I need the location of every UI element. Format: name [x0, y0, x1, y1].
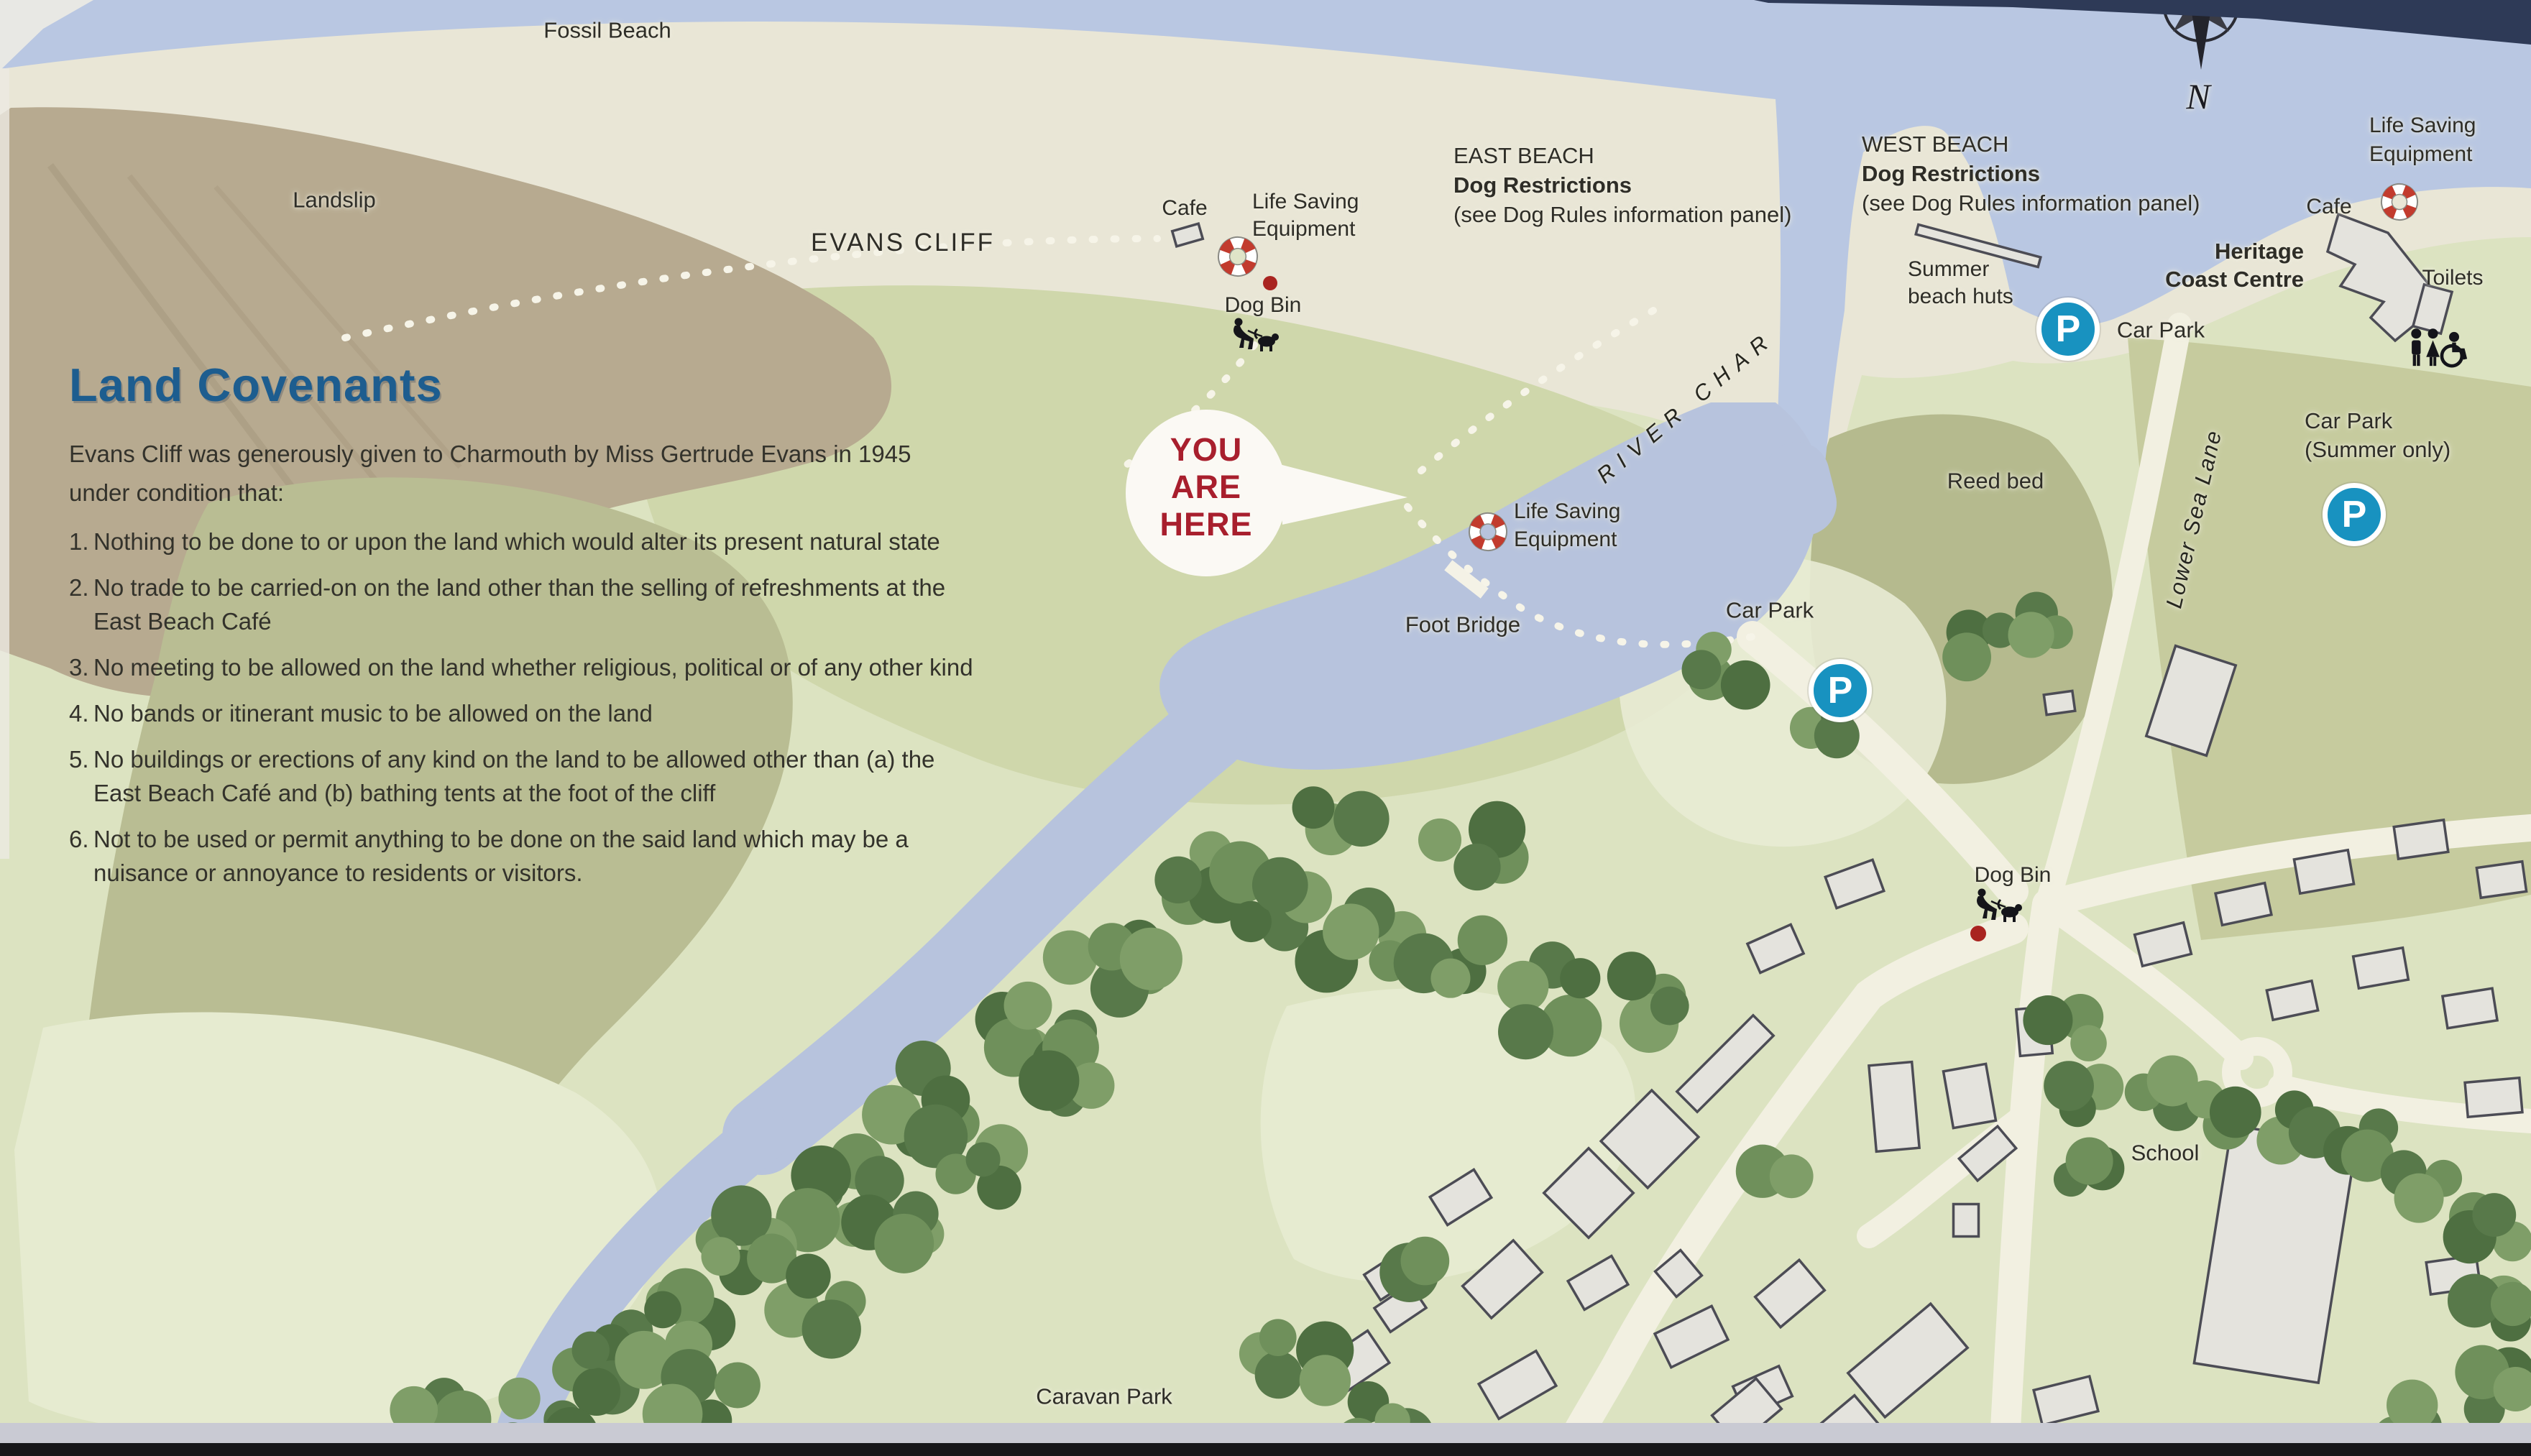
covenant-item: 4.No bands or itinerant music to be allo… — [69, 696, 1090, 730]
label-school: School — [2131, 1139, 2200, 1166]
car-park-summer-line: (Summer only) — [2305, 436, 2450, 464]
west-beach-see-panel: (see Dog Rules information panel) — [1862, 188, 2200, 218]
covenants-intro-line: under condition that: — [69, 474, 1090, 512]
label-caravan-park: Caravan Park — [1036, 1383, 1172, 1409]
label-fossil-beach: Fossil Beach — [543, 17, 671, 43]
label-life-saving-west: Life Saving Equipment — [2369, 111, 2476, 169]
parking-icon-west: P — [2036, 298, 2100, 361]
label-dog-bin-south: Dog Bin — [1975, 862, 2052, 888]
covenant-text: No bands or itinerant music to be allowe… — [93, 696, 653, 730]
covenant-line: nuisance or annoyance to residents or vi… — [93, 856, 909, 890]
west-beach-title: WEST BEACH — [1862, 129, 2200, 159]
car-park-summer-line: Car Park — [2305, 407, 2450, 436]
covenant-item: 2.No trade to be carried-on on the land … — [69, 571, 1090, 638]
page-title: Land Covenants — [69, 358, 1090, 412]
east-beach-dog-restrictions: Dog Restrictions — [1453, 170, 1791, 200]
you-are-here-line: ARE — [1159, 469, 1252, 506]
covenant-number: 6. — [69, 822, 93, 890]
covenant-item: 5.No buildings or erections of any kind … — [69, 742, 1090, 810]
covenant-item: 1.Nothing to be done to or upon the land… — [69, 525, 1090, 558]
label-layer: Land Covenants Evans Cliff was generousl… — [0, 0, 2531, 1456]
summer-huts-line: Summer — [1908, 256, 2013, 283]
label-river-char: RIVER CHAR — [1591, 325, 1780, 489]
label-life-saving-river: Life Saving Equipment — [1514, 497, 1620, 553]
label-lower-sea-lane: Lower Sea Lane — [2160, 427, 2227, 611]
label-car-park-mid: Car Park — [1726, 596, 1814, 623]
life-saving-line: Equipment — [1514, 525, 1620, 553]
label-car-park-summer: Car Park (Summer only) — [2305, 407, 2450, 464]
covenant-line: Not to be used or permit anything to be … — [93, 822, 909, 856]
covenant-text: No trade to be carried-on on the land ot… — [93, 571, 945, 638]
east-beach-title: EAST BEACH — [1453, 141, 1791, 170]
label-dog-bin-east: Dog Bin — [1225, 292, 1302, 318]
heritage-line: Heritage — [2124, 237, 2304, 265]
label-foot-bridge: Foot Bridge — [1405, 611, 1520, 637]
you-are-here-line: YOU — [1159, 431, 1252, 469]
covenants-panel: Land Covenants Evans Cliff was generousl… — [69, 358, 1090, 890]
label-summer-beach-huts: Summer beach huts — [1908, 256, 2013, 310]
label-life-saving-east: Life Saving Equipment — [1252, 188, 1359, 243]
label-car-park-west: Car Park — [2117, 316, 2205, 343]
label-toilets: Toilets — [2422, 265, 2483, 291]
covenants-intro-line: Evans Cliff was generously given to Char… — [69, 435, 1090, 474]
heritage-line: Coast Centre — [2124, 265, 2304, 293]
label-reed-bed: Reed bed — [1947, 467, 2044, 494]
covenant-line: East Beach Café — [93, 604, 945, 638]
covenants-list: 1.Nothing to be done to or upon the land… — [69, 525, 1090, 890]
covenant-number: 3. — [69, 650, 93, 684]
covenant-item: 6.Not to be used or permit anything to b… — [69, 822, 1090, 890]
covenant-number: 2. — [69, 571, 93, 638]
covenant-number: 4. — [69, 696, 93, 730]
label-heritage-coast-centre: Heritage Coast Centre — [2124, 237, 2304, 293]
covenant-line: No meeting to be allowed on the land whe… — [93, 650, 973, 684]
covenant-text: Nothing to be done to or upon the land w… — [93, 525, 940, 558]
label-evans-cliff: EVANS CLIFF — [811, 228, 995, 258]
covenant-line: No trade to be carried-on on the land ot… — [93, 571, 945, 604]
covenant-line: Nothing to be done to or upon the land w… — [93, 525, 940, 558]
map-sign: Land Covenants Evans Cliff was generousl… — [0, 0, 2531, 1456]
life-saving-line: Life Saving — [1252, 188, 1359, 216]
life-saving-line: Equipment — [1252, 216, 1359, 243]
west-beach-dog-restrictions: Dog Restrictions — [1862, 159, 2200, 188]
covenant-line: No buildings or erections of any kind on… — [93, 742, 934, 776]
parking-icon-summer: P — [2323, 483, 2386, 546]
label-east-beach: EAST BEACH Dog Restrictions (see Dog Rul… — [1453, 141, 1791, 229]
label-cafe-east: Cafe — [1162, 195, 1207, 221]
label-cafe-west: Cafe — [2306, 194, 2351, 220]
covenant-line: East Beach Café and (b) bathing tents at… — [93, 776, 934, 810]
covenant-text: Not to be used or permit anything to be … — [93, 822, 909, 890]
you-are-here-label: YOU ARE HERE — [1159, 431, 1252, 543]
compass-north-label: N — [2186, 75, 2210, 118]
covenant-text: No buildings or erections of any kind on… — [93, 742, 934, 810]
label-landslip: Landslip — [293, 186, 375, 213]
summer-huts-line: beach huts — [1908, 283, 2013, 310]
parking-icon-mid: P — [1809, 659, 1872, 722]
east-beach-see-panel: (see Dog Rules information panel) — [1453, 200, 1791, 229]
covenant-item: 3.No meeting to be allowed on the land w… — [69, 650, 1090, 684]
label-west-beach: WEST BEACH Dog Restrictions (see Dog Rul… — [1862, 129, 2200, 218]
life-saving-line: Equipment — [2369, 140, 2476, 169]
covenant-number: 1. — [69, 525, 93, 558]
life-saving-line: Life Saving — [1514, 497, 1620, 525]
covenant-number: 5. — [69, 742, 93, 810]
you-are-here-line: HERE — [1159, 506, 1252, 543]
covenants-intro: Evans Cliff was generously given to Char… — [69, 435, 1090, 512]
covenant-line: No bands or itinerant music to be allowe… — [93, 696, 653, 730]
life-saving-line: Life Saving — [2369, 111, 2476, 140]
covenant-text: No meeting to be allowed on the land whe… — [93, 650, 973, 684]
